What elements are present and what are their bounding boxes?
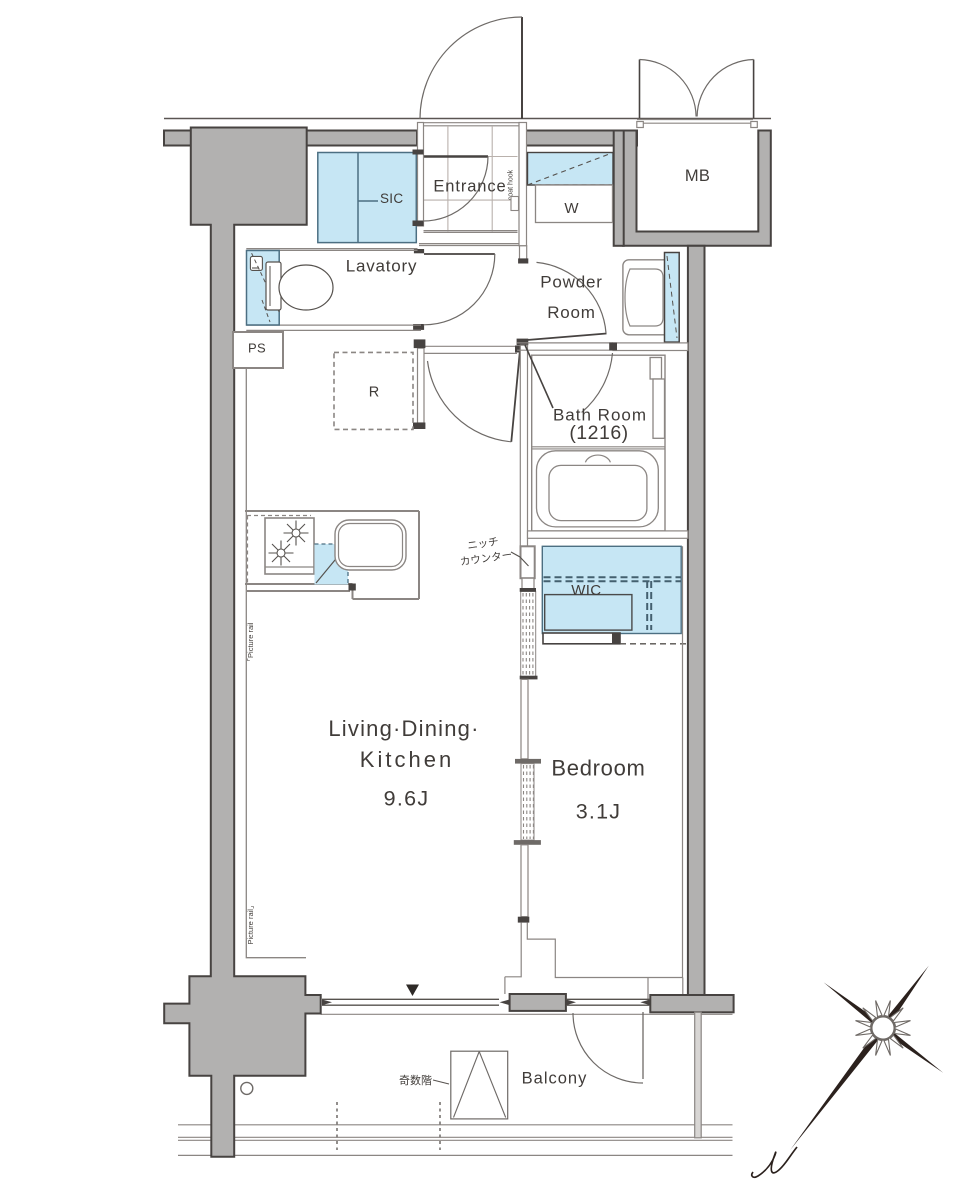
svg-text:奇数階: 奇数階 — [399, 1073, 432, 1087]
svg-text:Room: Room — [547, 303, 596, 322]
svg-text:3.1J: 3.1J — [576, 800, 621, 824]
svg-text:Entrance: Entrance — [433, 178, 506, 196]
svg-text:Living·Dining·: Living·Dining· — [328, 716, 479, 741]
svg-text:Kitchen: Kitchen — [360, 747, 454, 772]
svg-text:W: W — [564, 200, 579, 217]
svg-text:Balcony: Balcony — [522, 1070, 588, 1088]
svg-text:MB: MB — [685, 167, 710, 185]
svg-text:Powder: Powder — [540, 273, 602, 292]
svg-text:(1216): (1216) — [569, 422, 628, 444]
svg-text:Lavatory: Lavatory — [346, 257, 418, 276]
svg-text:Bedroom: Bedroom — [551, 756, 645, 781]
svg-text:PS: PS — [248, 341, 266, 356]
svg-text:Picture rail⌟: Picture rail⌟ — [246, 905, 255, 944]
svg-text:9.6J: 9.6J — [384, 787, 430, 811]
svg-text:coat hook: coat hook — [508, 169, 515, 200]
svg-text:SIC: SIC — [380, 191, 403, 206]
svg-text:R: R — [369, 385, 379, 401]
svg-text:WIC: WIC — [571, 582, 601, 599]
svg-text:⌜Picture rail: ⌜Picture rail — [246, 622, 255, 661]
